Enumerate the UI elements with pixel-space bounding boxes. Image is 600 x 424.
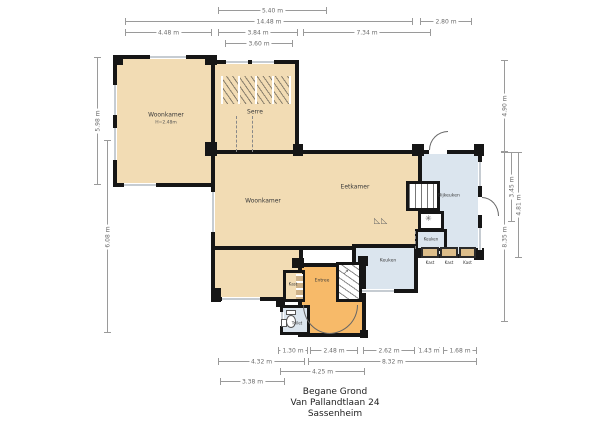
dimension-label: 4.90 m — [501, 93, 508, 118]
dimension-line: 8.35 m — [504, 152, 505, 322]
room-label-kast: Kast — [289, 282, 298, 287]
cabinet-label: Kast — [463, 260, 472, 265]
dimension-label: 3.38 m — [240, 378, 265, 385]
dimension-label: 8.35 m — [501, 224, 508, 249]
toilet-sink — [281, 319, 287, 327]
door-arc — [482, 197, 499, 216]
dimension-line: 7.34 m — [303, 32, 431, 33]
dimension-line: 3.38 m — [220, 381, 285, 382]
cabinet-label: Kast — [445, 260, 454, 265]
dimension-line: 4.90 m — [504, 60, 505, 152]
cabinet-unit: Kast — [459, 247, 476, 258]
staircase-straight — [406, 181, 440, 211]
dimension-line: 4.32 m — [218, 361, 305, 362]
staircase-winder — [336, 262, 362, 302]
wall-pillar — [292, 258, 304, 268]
dimension-line: 3.45 m — [511, 152, 512, 222]
door-arc — [429, 131, 448, 150]
wall-pillar — [205, 142, 217, 156]
dimension-line: 2.48 m — [310, 350, 358, 351]
closet-shelves — [296, 274, 303, 299]
cabinet-unit: Kast — [440, 247, 458, 258]
dimension-label: 4.81 m — [515, 192, 522, 217]
wall-pillar — [211, 288, 221, 302]
dimension-label: 1.68 m — [447, 347, 472, 354]
dimension-label: 2.80 m — [433, 18, 458, 25]
opening-dashed-line — [415, 231, 416, 249]
dimension-label: 5.40 m — [260, 7, 285, 14]
plan-title-address: Van Pallandtlaan 24 — [250, 398, 420, 409]
dimension-line: 2.62 m — [363, 350, 415, 351]
opening-dashed-line — [252, 116, 253, 152]
dimension-label: 4.25 m — [310, 368, 335, 375]
opening-dashed-line — [236, 116, 237, 152]
room-woonkamer-eetkamer — [211, 150, 422, 250]
dimension-line: 6.08 m — [107, 140, 108, 333]
dimension-line: 3.60 m — [225, 43, 293, 44]
room-label-bijkeuken: Bijkeuken — [438, 194, 460, 199]
dimension-label: 3.84 m — [245, 29, 270, 36]
dimension-line: 5.40 m — [218, 10, 327, 11]
wall-pillar — [276, 298, 285, 307]
room-label-keuken-klein: Keuken — [424, 237, 439, 242]
room-label-eetkamer: Eetkamer — [341, 184, 370, 191]
window — [222, 297, 260, 301]
room-serre — [211, 60, 299, 154]
window — [124, 183, 156, 187]
dimension-label: 2.62 m — [376, 347, 401, 354]
dimension-line: 3.84 m — [218, 32, 298, 33]
window — [113, 128, 117, 160]
plan-title-city: Sassenheim — [250, 409, 420, 420]
dimension-line: 8.32 m — [308, 361, 477, 362]
dimension-label: 3.60 m — [246, 40, 271, 47]
dimension-label: 5.98 m — [94, 108, 101, 133]
plan-title-floor: Begane Grond — [250, 387, 420, 398]
dimension-line: 2.80 m — [420, 21, 472, 22]
dimension-line: 1.68 m — [443, 350, 477, 351]
dimension-label: 6.08 m — [104, 224, 111, 249]
window — [358, 289, 394, 293]
dimension-label: 4.48 m — [156, 29, 181, 36]
dimension-label: 3.45 m — [508, 174, 515, 199]
plan-title-block: Begane Grond Van Pallandtlaan 24 Sassenh… — [250, 387, 420, 420]
room-sublabel-height: H=2.48m — [155, 121, 177, 126]
kitchen-counter-icon: ◺◺ — [374, 216, 388, 225]
room-label-woonkamer: Woonkamer — [245, 198, 281, 205]
dimension-line: 1.43 m — [418, 350, 440, 351]
dimension-label: 14.48 m — [255, 18, 284, 25]
serre-roof-hatch — [221, 76, 291, 104]
window — [113, 85, 117, 115]
dimension-label: 8.32 m — [380, 358, 405, 365]
dimension-line: 4.48 m — [125, 32, 212, 33]
dimension-label: 4.32 m — [249, 358, 274, 365]
dimension-line: 14.48 m — [125, 21, 413, 22]
dimension-label: 1.43 m — [416, 347, 441, 354]
room-label-serre: Serre — [247, 109, 263, 116]
room-label-woonkamer-links: Woonkamer — [148, 112, 184, 119]
window — [150, 55, 186, 59]
wall-pillar — [360, 330, 368, 338]
room-label-entree: Entree — [315, 279, 330, 284]
window — [211, 192, 215, 232]
wall-pillar — [474, 144, 484, 156]
dimension-line: 1.30 m — [278, 350, 308, 351]
dimension-label: 1.30 m — [280, 347, 305, 354]
dimension-line: 5.98 m — [97, 57, 98, 185]
room-label-keuken: Keuken — [380, 259, 396, 264]
wall-pillar — [293, 144, 303, 156]
floorplan-canvas: ↗ ✳ ◺◺ Kast Kast Kast Woonkamer — [0, 0, 600, 424]
stairs-arrow-icon: ↗ — [343, 268, 349, 276]
cabinet-label: Kast — [426, 260, 435, 265]
dimension-line: 4.81 m — [518, 152, 519, 258]
room-label-toilet: Toilet — [292, 321, 302, 326]
wall-pillar — [412, 144, 424, 156]
window — [252, 60, 274, 64]
dimension-line: 4.25 m — [280, 371, 365, 372]
door-opening — [429, 150, 447, 154]
wall-pillar — [113, 55, 123, 65]
window — [226, 60, 248, 64]
ventilation-icon: ✳ — [425, 214, 432, 223]
dimension-label: 2.48 m — [321, 347, 346, 354]
wall-pillar — [205, 55, 217, 65]
window — [478, 162, 482, 186]
dimension-label: 7.34 m — [354, 29, 379, 36]
cabinet-unit: Kast — [421, 247, 439, 258]
window — [478, 228, 482, 250]
